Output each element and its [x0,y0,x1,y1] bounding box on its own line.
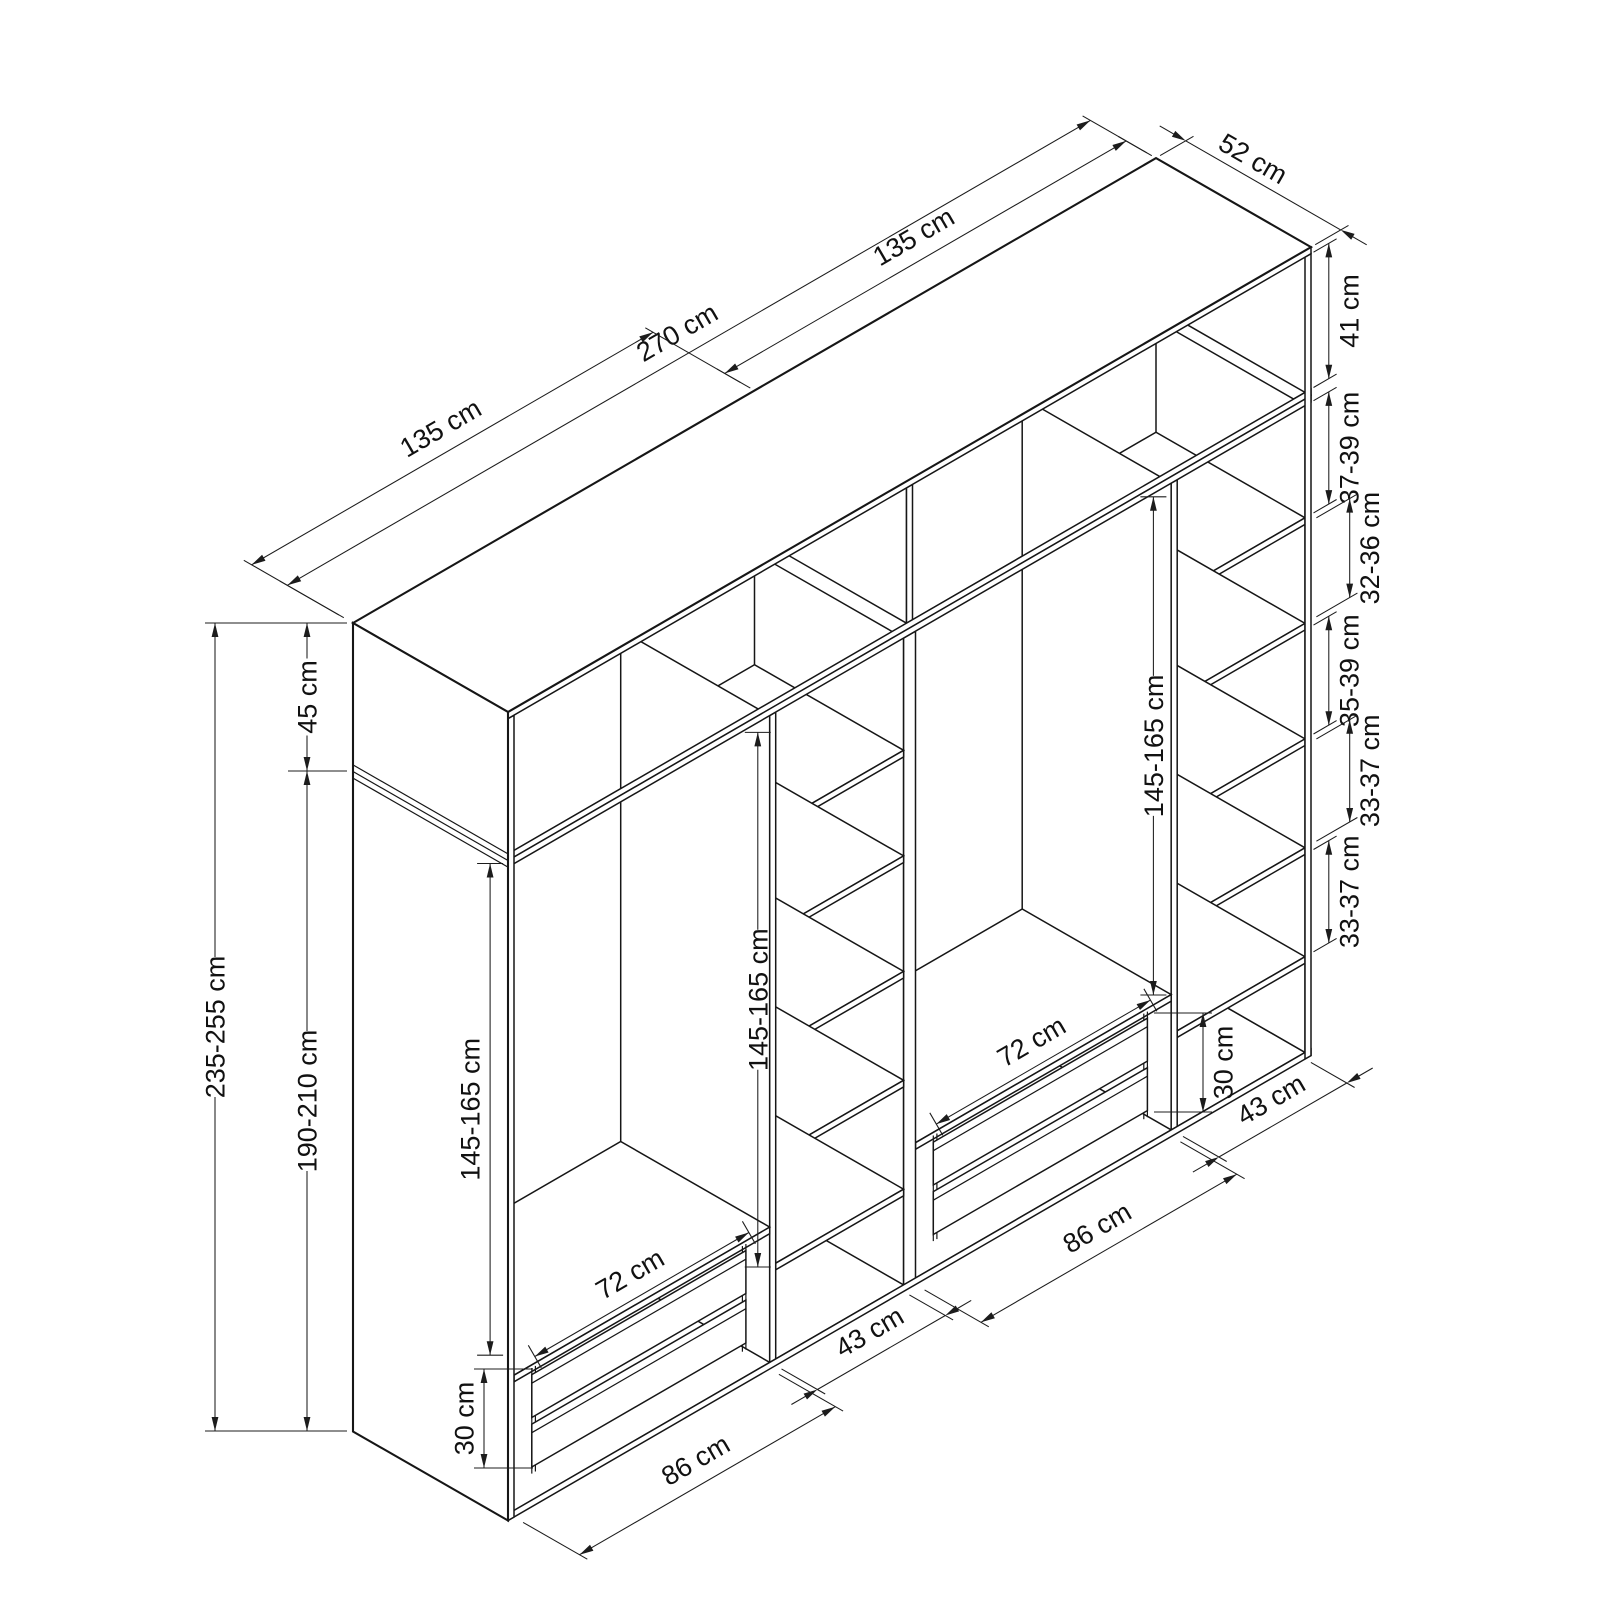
dim-line [1193,1163,1209,1172]
dim-line [1160,136,1193,155]
dim-line [244,560,339,615]
dim-line [1314,612,1337,625]
dim-label-top_interior_height: 41 cm [1334,274,1364,348]
dim-label-width_left_module: 135 cm [395,393,487,463]
dim-line [1160,126,1176,135]
dim-line [1351,236,1367,245]
dim-label-shelf_gap_4: 33-37 cm [1355,715,1385,828]
wardrobe-dimension-diagram: 135 cm270 cm135 cm52 cm41 cm37-39 cm32-3… [0,0,1600,1600]
dim-label-body_height: 190-210 cm [292,1030,322,1173]
dim-label-top_section_height: 45 cm [292,660,322,734]
dim-line [1311,1062,1355,1087]
dim-line [1316,593,1357,617]
dim-label-drawer_stack_height_left: 30 cm [449,1382,479,1456]
dim-line [1314,374,1337,387]
dim-line [1314,836,1337,849]
dim-label-drawer_stack_height_right: 30 cm [1208,1026,1238,1100]
topbox-divider-front [907,484,913,623]
dim-label-hanging_height_right: 145-165 cm [1139,675,1169,818]
dim-label-width_right_module: 135 cm [868,202,960,272]
dim-line [1314,721,1337,734]
dim-arrow [1205,1157,1219,1167]
dim-label-opening_width_right: 86 cm [1058,1196,1137,1259]
dim-line [1183,1136,1227,1161]
divider-right-front [1171,480,1177,1130]
dim-line [1314,239,1337,252]
dim-label-hanging_height_left: 145-165 cm [456,1038,486,1181]
middle-wall-front [904,631,916,1285]
dim-label-shelf_gap_3: 35-39 cm [1334,614,1364,727]
dim-label-shelf_gap_5: 33-37 cm [1334,836,1364,949]
dim-arrow [804,1390,818,1400]
dim-line [1314,387,1337,400]
wardrobe-drawing: 135 cm270 cm135 cm52 cm41 cm37-39 cm32-3… [200,116,1385,1559]
dim-arrow [1172,131,1186,141]
dim-label-height_total: 235-255 cm [200,956,230,1099]
dim-line [782,1369,826,1394]
dim-line [956,1300,972,1309]
dim-line [791,1396,807,1405]
dim-line [1314,500,1337,513]
dim-line [909,1295,953,1320]
dim-label-depth: 52 cm [1214,128,1293,191]
dim-label-shelf_gap_2: 32-36 cm [1355,492,1385,605]
dim-line [523,1522,587,1559]
dim-line [1357,1068,1373,1077]
dim-label-opening_width_left: 86 cm [656,1429,735,1492]
dim-line [1314,938,1337,951]
front-strip-right [1305,254,1311,1059]
dim-arrow [1341,230,1355,240]
dim-label-width_total: 270 cm [631,297,723,367]
diagram-canvas: 135 cm270 cm135 cm52 cm41 cm37-39 cm32-3… [0,0,1600,1600]
dim-arrow [945,1306,959,1316]
dim-label-hanging_height_middle: 145-165 cm [743,928,773,1071]
dim-label-shelf_gap_1: 37-39 cm [1334,392,1364,505]
dim-arrow [1347,1073,1361,1083]
